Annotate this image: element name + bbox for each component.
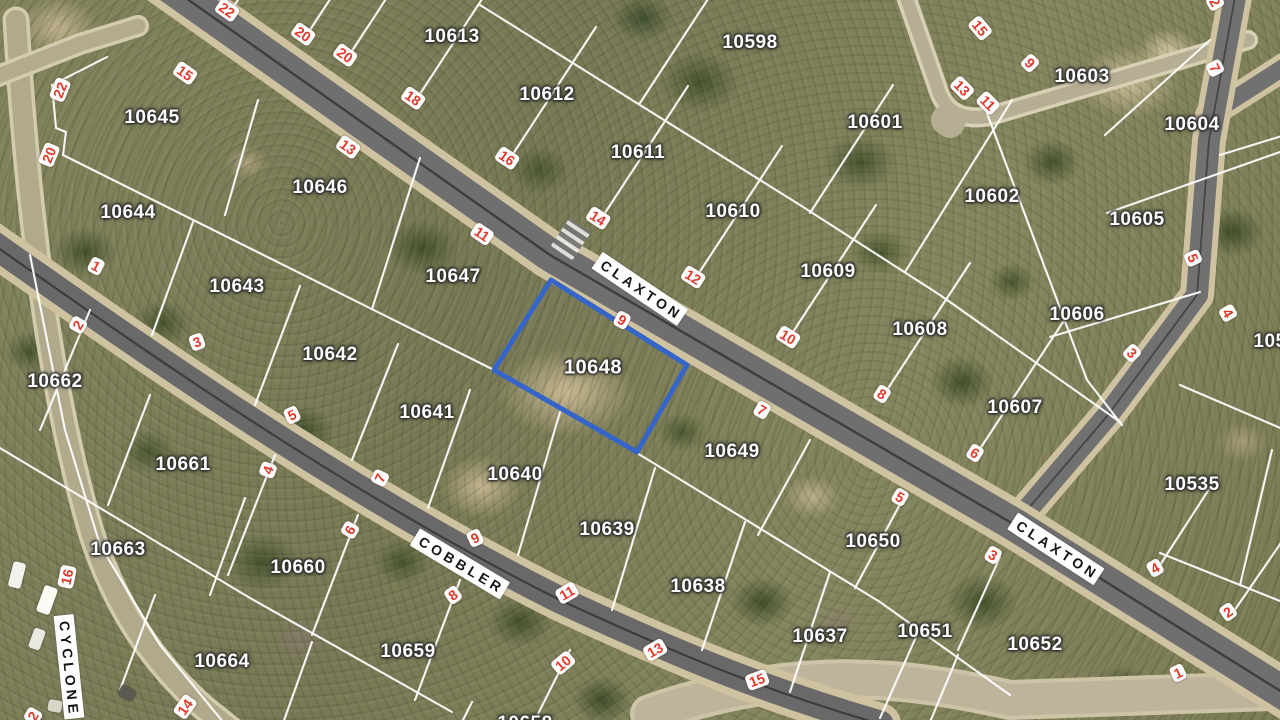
vehicle: [7, 561, 26, 589]
street-number: 1: [1168, 663, 1187, 683]
street-number: 8: [443, 584, 463, 605]
street-name-claxton: CLAXTON: [592, 252, 689, 326]
street-number: 15: [744, 669, 770, 691]
street-number: 4: [1145, 558, 1165, 579]
street-number: 3: [983, 545, 1003, 566]
parcel-label-10664[interactable]: 10664: [194, 651, 249, 673]
street-name-cobbler: COBBLER: [410, 528, 511, 599]
street-number: 7: [752, 400, 772, 421]
street-number: 15: [967, 15, 993, 42]
parcel-label-10608[interactable]: 10608: [892, 319, 947, 341]
parcel-label-10601[interactable]: 10601: [847, 112, 902, 134]
street-number: 16: [494, 145, 521, 170]
parcel-label-10603[interactable]: 10603: [1054, 66, 1109, 88]
parcel-label-10641[interactable]: 10641: [399, 402, 454, 424]
street-number: 16: [57, 565, 77, 589]
street-number: 5: [1183, 248, 1203, 267]
parcel-label-10605[interactable]: 10605: [1109, 209, 1164, 231]
parcel-label-10663[interactable]: 10663: [90, 539, 145, 561]
parcel-label-10647[interactable]: 10647: [425, 266, 480, 288]
street-number: 11: [469, 222, 495, 247]
street-number: 2: [1218, 601, 1238, 622]
street-number: 8: [872, 384, 892, 405]
parcel-label-10640[interactable]: 10640: [487, 464, 542, 486]
parcel-label-10643[interactable]: 10643: [209, 276, 264, 298]
street-number: 7: [370, 468, 390, 487]
parcel-label-10659[interactable]: 10659: [380, 641, 435, 663]
parcel-label-10661[interactable]: 10661: [155, 454, 210, 476]
parcel-label-10604[interactable]: 10604: [1164, 114, 1219, 136]
street-number: 6: [965, 443, 985, 464]
parcel-label-10646[interactable]: 10646: [292, 177, 347, 199]
parcel-label-10609[interactable]: 10609: [800, 261, 855, 283]
street-number: 4: [258, 461, 278, 479]
street-number: 14: [585, 205, 612, 230]
street-number: 3: [188, 332, 206, 352]
parcel-label-10638[interactable]: 10638: [670, 576, 725, 598]
parcel-label-10650[interactable]: 10650: [845, 531, 900, 553]
parcel-label-10649[interactable]: 10649: [704, 441, 759, 463]
street-number: 2: [23, 706, 44, 720]
street-number: 1: [86, 256, 106, 277]
street-number: 20: [38, 142, 61, 168]
street-number: 22: [214, 0, 241, 23]
street-number: 5: [890, 487, 910, 508]
parcel-label-10611[interactable]: 10611: [611, 142, 665, 164]
street-number: 22: [49, 77, 72, 103]
parcel-label-10660[interactable]: 10660: [270, 557, 325, 579]
street-number: 3: [1121, 342, 1142, 363]
aerial-map-canvas[interactable]: CLAXTONCLAXTONCOBBLERCYCLONE222020181614…: [0, 0, 1280, 720]
parcel-label-10607[interactable]: 10607: [987, 397, 1042, 419]
map-labels-layer: CLAXTONCLAXTONCOBBLERCYCLONE222020181614…: [0, 0, 1280, 720]
street-number: 4: [1218, 303, 1239, 323]
street-number: 18: [400, 85, 427, 110]
parcel-label-10645[interactable]: 10645: [124, 107, 179, 129]
street-number: 2: [1205, 0, 1226, 12]
street-number: 10: [550, 650, 577, 676]
street-number: 13: [335, 134, 362, 159]
street-number: 9: [612, 310, 632, 331]
street-number: 6: [340, 520, 361, 540]
street-number: 11: [554, 581, 580, 605]
parcel-label-10651[interactable]: 10651: [897, 621, 952, 643]
parcel-label-10602[interactable]: 10602: [964, 186, 1019, 208]
vehicle: [117, 684, 137, 702]
street-number: 20: [290, 21, 317, 46]
parcel-label-10658[interactable]: 10658: [497, 713, 552, 720]
street-number: 13: [949, 75, 976, 102]
street-number: 20: [332, 42, 359, 67]
street-number: 9: [465, 528, 484, 548]
street-number: 7: [1205, 58, 1226, 78]
street-number: 14: [172, 694, 197, 720]
parcel-label-10639[interactable]: 10639: [579, 519, 634, 541]
street-name-claxton: CLAXTON: [1007, 512, 1105, 585]
parcel-label-10652[interactable]: 10652: [1007, 634, 1062, 656]
street-number: 9: [1019, 52, 1040, 73]
parcel-label-10612[interactable]: 10612: [519, 84, 574, 106]
parcel-label-10610[interactable]: 10610: [705, 201, 760, 223]
street-number: 15: [172, 60, 199, 85]
parcel-label-10637[interactable]: 10637: [792, 626, 847, 648]
vehicle: [47, 699, 63, 713]
street-number: 11: [975, 90, 1001, 116]
street-number: 5: [282, 405, 301, 425]
parcel-label-10648[interactable]: 10648: [564, 357, 622, 380]
parcel-label-10598[interactable]: 10598: [722, 32, 777, 54]
street-number: 13: [642, 638, 669, 663]
parcel-label-10642[interactable]: 10642: [302, 344, 357, 366]
vehicle: [36, 584, 59, 615]
road-crossing-marker: [551, 218, 592, 261]
parcel-label-10535[interactable]: 10535: [1164, 474, 1219, 496]
parcel-label-105[interactable]: 105: [1253, 331, 1280, 353]
street-number: 2: [68, 315, 89, 335]
street-number: 10: [775, 324, 802, 349]
parcel-label-10662[interactable]: 10662: [27, 371, 82, 393]
parcel-label-10613[interactable]: 10613: [424, 26, 479, 48]
vehicle: [28, 627, 46, 651]
street-number: 12: [680, 264, 707, 289]
parcel-label-10606[interactable]: 10606: [1049, 304, 1104, 326]
parcel-label-10644[interactable]: 10644: [100, 202, 155, 224]
